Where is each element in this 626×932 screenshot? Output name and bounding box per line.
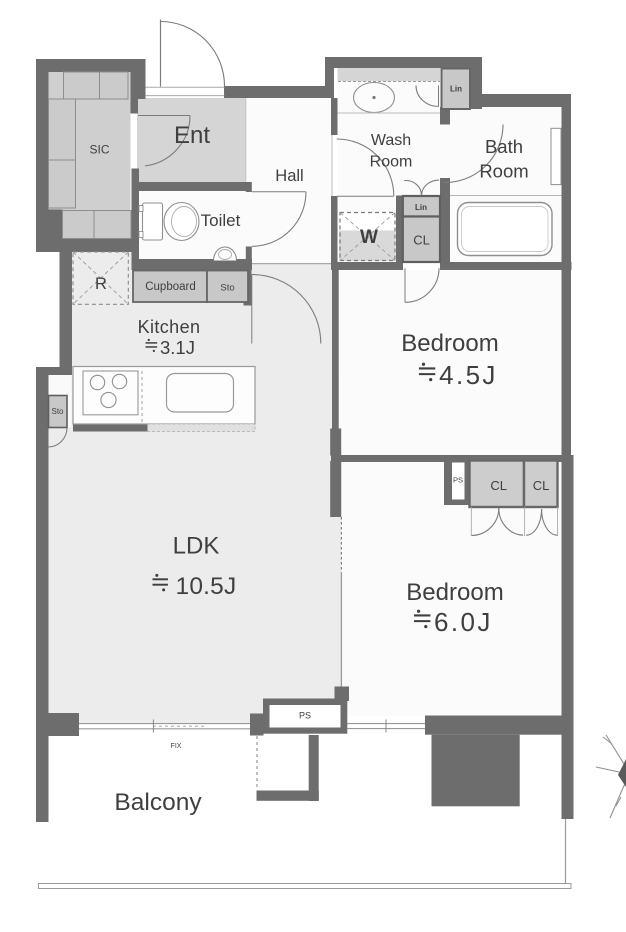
svg-text:SIC: SIC (89, 143, 109, 157)
svg-text:Ent: Ent (174, 122, 210, 149)
svg-text:CL: CL (533, 478, 550, 493)
svg-text:3.1J: 3.1J (160, 337, 195, 358)
svg-text:LDK: LDK (173, 533, 220, 560)
svg-text:FIX: FIX (171, 743, 182, 750)
svg-text:Cupboard: Cupboard (145, 281, 196, 293)
svg-text:Lin: Lin (450, 85, 462, 94)
svg-text:Sto: Sto (51, 407, 64, 416)
svg-text:Balcony: Balcony (114, 789, 202, 816)
svg-text:R: R (95, 275, 107, 293)
svg-text:CL: CL (413, 233, 430, 248)
svg-text:4.5J: 4.5J (439, 360, 498, 390)
svg-text:CL: CL (490, 478, 507, 493)
svg-text:Sto: Sto (220, 283, 234, 294)
svg-text:Kitchen: Kitchen (138, 317, 201, 337)
svg-text:Wash: Wash (371, 132, 411, 149)
svg-text:PS: PS (299, 711, 311, 721)
svg-text:W: W (360, 227, 378, 248)
svg-text:PS: PS (453, 476, 463, 485)
svg-text:Toilet: Toilet (201, 211, 241, 230)
svg-text:Bath: Bath (485, 136, 523, 157)
svg-text:Bedroom: Bedroom (406, 579, 503, 606)
svg-text:Lin: Lin (415, 203, 427, 212)
svg-text:6.0J: 6.0J (434, 607, 493, 637)
svg-text:Bedroom: Bedroom (401, 330, 498, 357)
svg-text:Room: Room (370, 154, 413, 171)
svg-text:Room: Room (479, 161, 528, 182)
svg-text:10.5J: 10.5J (176, 573, 237, 600)
svg-text:Hall: Hall (275, 167, 303, 185)
